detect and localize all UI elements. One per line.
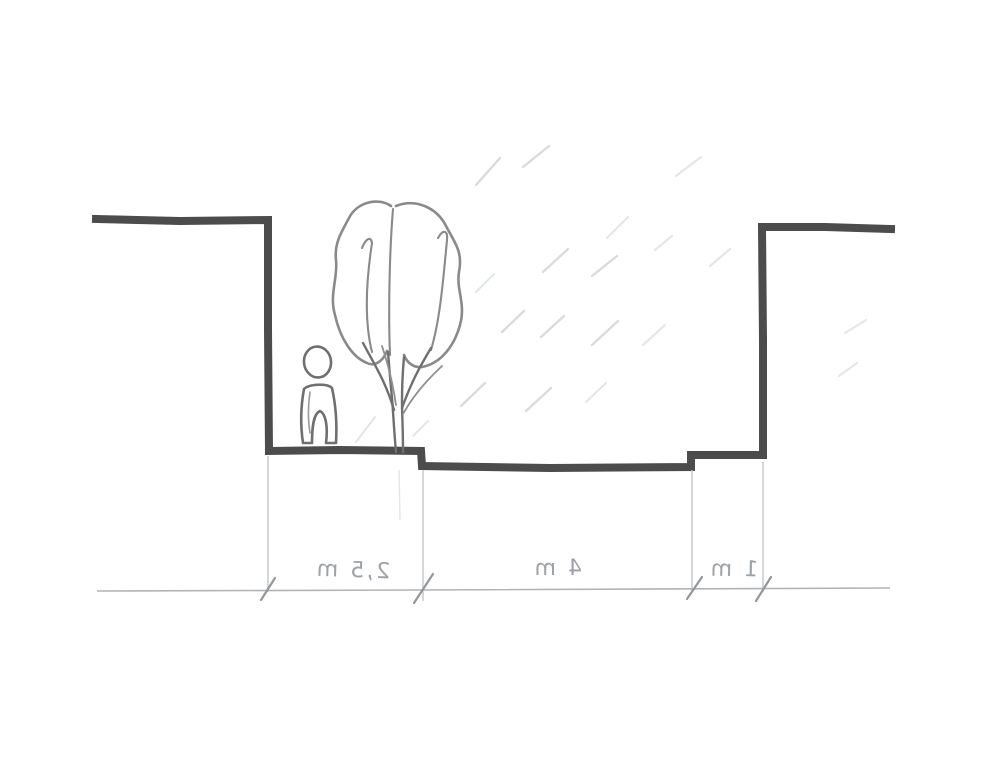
- section-ground-profile: [96, 219, 891, 468]
- tree-crown: [333, 202, 462, 368]
- dimension-line: [97, 588, 890, 591]
- tree-trunk: [363, 343, 442, 452]
- tree-figure: [333, 202, 462, 452]
- hatching-strokes: [356, 146, 866, 442]
- dimension-label-middle: 4 m: [532, 556, 582, 581]
- dimension-label-left: 2,5 m: [314, 557, 391, 585]
- person-head: [302, 345, 333, 379]
- person-figure: [301, 345, 336, 443]
- person-body: [301, 385, 336, 443]
- dimension-label-right: 1 m: [708, 557, 758, 583]
- crown-center-line: [389, 209, 393, 355]
- section-sketch-canvas: 2,5 m 4 m 1 m: [0, 0, 997, 776]
- person-arm-line: [309, 392, 311, 433]
- sketch-page: 2,5 m 4 m 1 m: [0, 0, 997, 776]
- crown-right-vein: [431, 232, 447, 350]
- crown-left-vein: [362, 239, 372, 352]
